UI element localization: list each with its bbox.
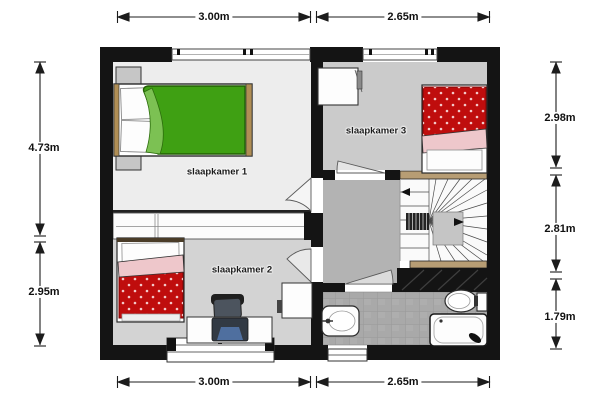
floor-plan: slaapkamer 1 slaapkamer 2 slaapkamer 3 3… — [0, 0, 600, 400]
cabinet-icon-room2 — [277, 283, 312, 318]
room3-label: slaapkamer 3 — [346, 126, 406, 137]
room1-label: slaapkamer 1 — [187, 167, 247, 178]
window-icon-room1 — [172, 49, 310, 60]
single-bed-icon-room2 — [117, 238, 184, 322]
wardrobe-icon-room3 — [318, 68, 362, 105]
dim-bottom-left: 3.00m — [195, 376, 232, 388]
office-chair-icon — [211, 294, 244, 319]
toilet-icon — [445, 290, 487, 312]
floor-plan-drawing — [0, 0, 600, 400]
double-bed-icon — [114, 84, 252, 156]
stair-newel-block — [406, 213, 429, 230]
window-icon-room3 — [363, 49, 437, 60]
dim-right-lower: 1.79m — [541, 311, 578, 323]
dim-left-upper: 4.73m — [25, 142, 62, 154]
laptop-icon — [212, 318, 248, 341]
window-icon-bathroom — [328, 349, 367, 361]
dim-top-left: 3.00m — [195, 11, 232, 23]
hall-floor — [323, 180, 400, 283]
bathtub-icon — [430, 314, 487, 346]
wardrobe-band-icon — [113, 210, 311, 240]
stair-landing — [433, 212, 463, 245]
room2-label: slaapkamer 2 — [212, 265, 272, 276]
dim-left-lower: 2.95m — [25, 286, 62, 298]
dim-right-middle: 2.81m — [541, 223, 578, 235]
dim-top-right: 2.65m — [384, 11, 421, 23]
dim-bottom-right: 2.65m — [384, 376, 421, 388]
single-bed-icon-room3 — [422, 85, 487, 173]
sink-icon — [322, 306, 359, 336]
nightstand-icon — [116, 67, 141, 84]
dim-right-upper: 2.98m — [541, 112, 578, 124]
hatched-wall — [397, 268, 487, 292]
